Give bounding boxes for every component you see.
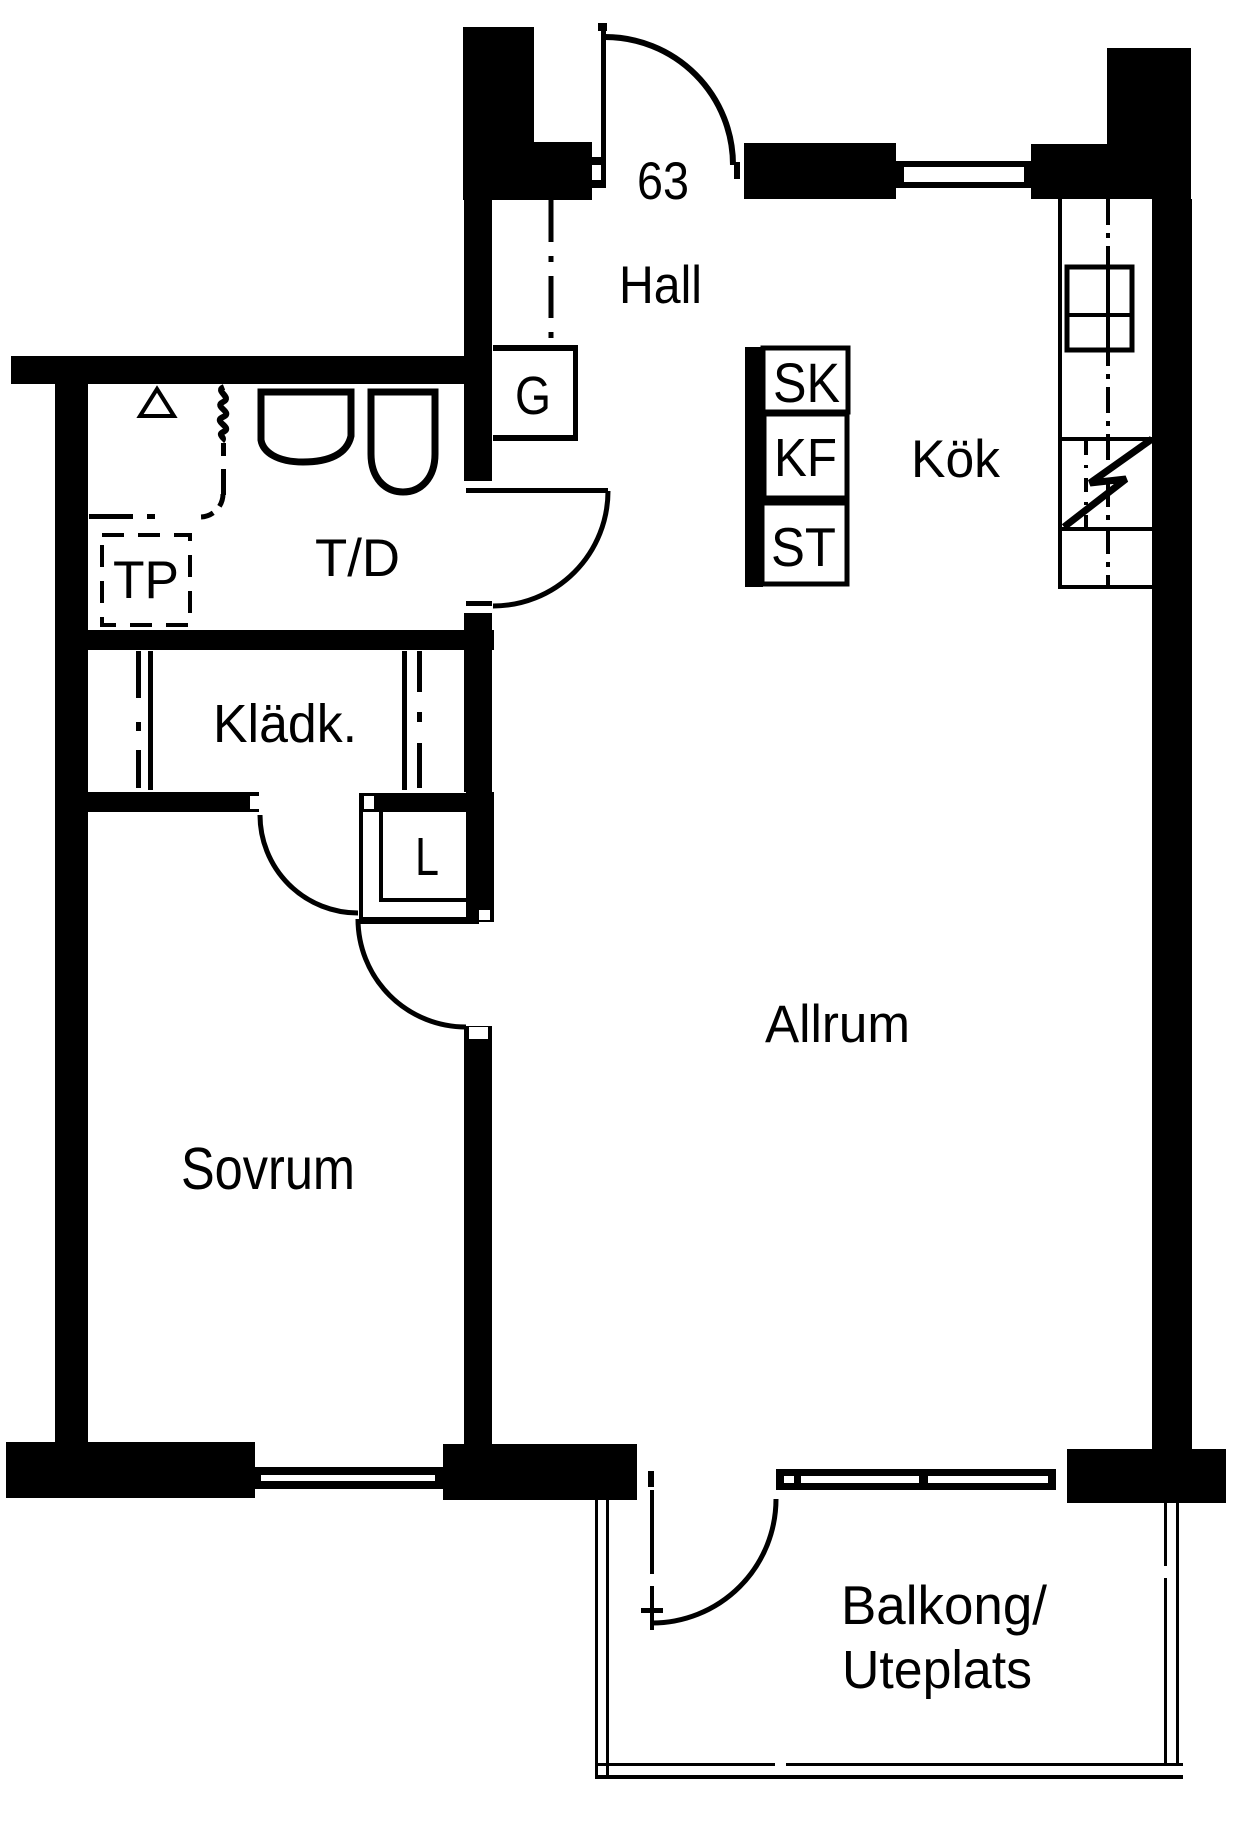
svg-text:Klädk.: Klädk. xyxy=(213,694,357,754)
svg-text:Hall: Hall xyxy=(619,256,702,315)
svg-text:T/D: T/D xyxy=(315,529,400,588)
svg-text:Uteplats: Uteplats xyxy=(842,1640,1032,1700)
svg-text:Allrum: Allrum xyxy=(765,995,910,1054)
svg-text:L: L xyxy=(415,827,439,887)
svg-text:SK: SK xyxy=(773,351,840,414)
svg-text:G: G xyxy=(515,366,551,426)
svg-text:ST: ST xyxy=(771,516,836,578)
svg-text:63: 63 xyxy=(637,152,689,211)
svg-text:KF: KF xyxy=(774,428,837,488)
svg-text:Balkong/: Balkong/ xyxy=(841,1574,1048,1636)
svg-text:Kök: Kök xyxy=(911,430,1000,489)
svg-text:TP: TP xyxy=(113,551,179,610)
svg-text:Sovrum: Sovrum xyxy=(181,1136,355,1202)
